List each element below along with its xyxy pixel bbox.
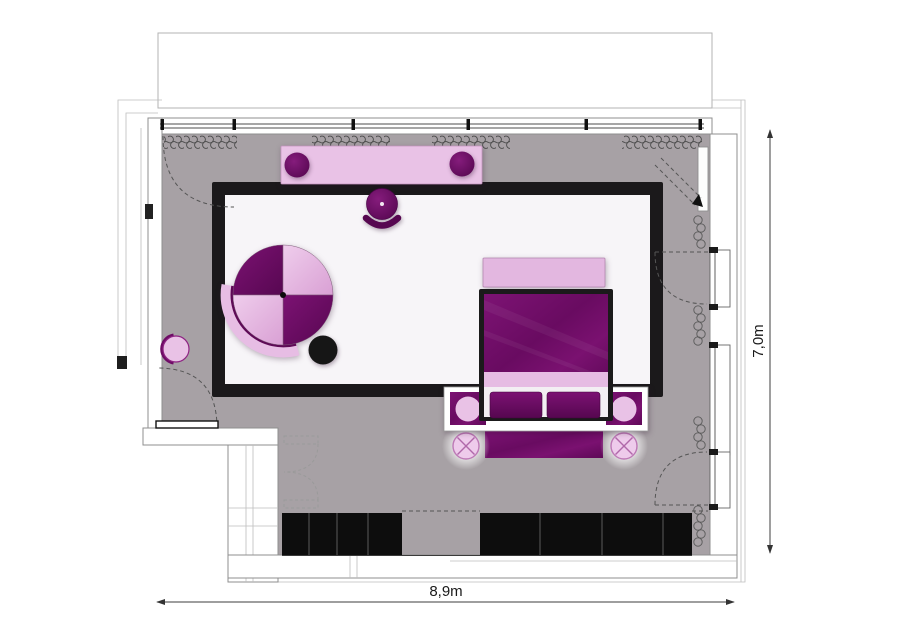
width-dimension-label: 8,9m	[429, 583, 462, 600]
pillow-left	[490, 392, 542, 418]
dimension-height: 7,0m	[750, 130, 770, 553]
left-wall	[148, 118, 162, 428]
console-stool-left	[285, 153, 310, 178]
floor-plan-page: 8,9m 7,0m	[0, 0, 900, 636]
nightstand-right	[612, 397, 637, 422]
wall-stool	[162, 335, 189, 363]
pillow-right	[547, 392, 600, 418]
window-casement-bottom	[709, 449, 730, 510]
foot-bench	[483, 258, 605, 287]
ceiling-lamp-right	[611, 433, 637, 459]
bedroom-floor-plan: 8,9m 7,0m	[0, 0, 900, 636]
headboard-runner	[485, 429, 603, 458]
entry-door-leaf	[156, 421, 218, 428]
height-dimension-label: 7,0m	[750, 324, 767, 357]
console-stool-right	[450, 152, 475, 177]
wardrobe-right	[480, 513, 692, 555]
balcony	[158, 33, 712, 108]
lower-left-wall-h	[143, 428, 278, 445]
wall-fitting	[145, 204, 153, 219]
nightstand-left	[456, 397, 481, 422]
ceiling-lamp-left	[453, 433, 479, 459]
bottom-wall	[228, 555, 737, 578]
sheet-fold	[484, 372, 608, 387]
double-bed	[479, 289, 613, 421]
wardrobe-left	[282, 513, 402, 555]
dimension-width: 8,9m	[157, 583, 734, 602]
wardrobes	[282, 511, 708, 556]
window-casement-top	[709, 247, 730, 310]
ottoman-side-table	[309, 336, 338, 365]
facade-connector	[117, 356, 127, 369]
window-fixed	[709, 342, 730, 455]
